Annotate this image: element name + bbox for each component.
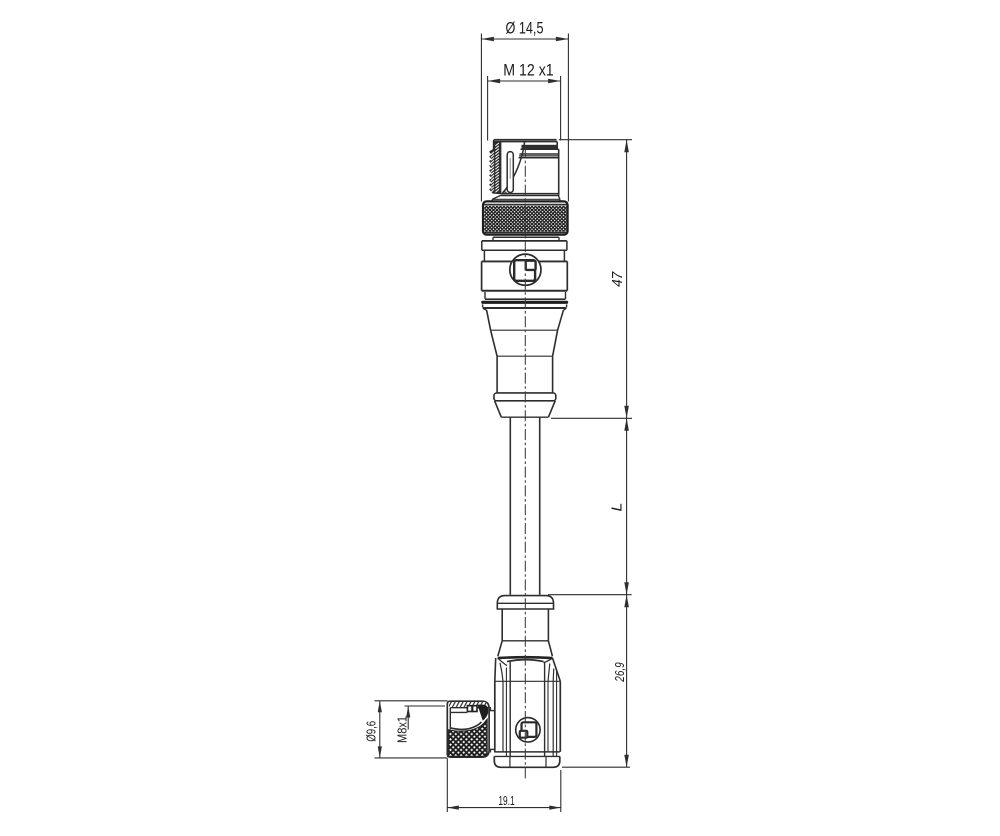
svg-text:L: L: [610, 503, 626, 512]
svg-text:Ø 14,5: Ø 14,5: [506, 18, 544, 37]
svg-text:19.1: 19.1: [498, 794, 514, 808]
svg-text:26,9: 26,9: [612, 662, 627, 682]
svg-text:47: 47: [610, 271, 626, 287]
svg-text:M8x1: M8x1: [395, 716, 410, 743]
svg-text:Ø9,6: Ø9,6: [364, 721, 379, 742]
svg-text:M 12 x1: M 12 x1: [503, 61, 553, 80]
